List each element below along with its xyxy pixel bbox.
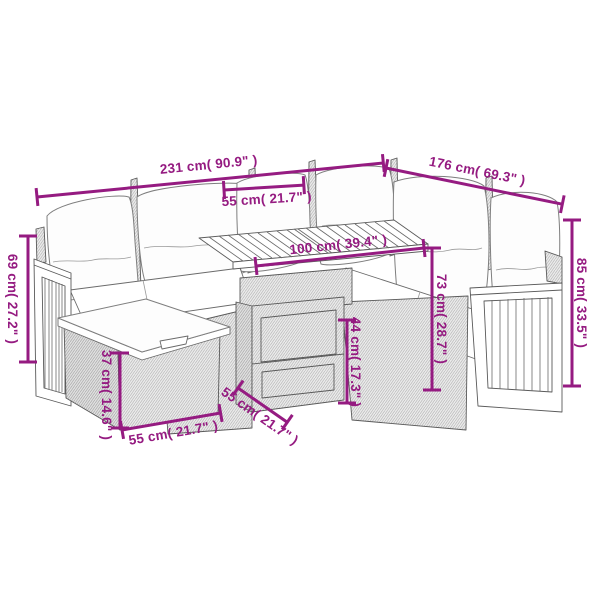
dimension-label: 73 cm( 28.7" ) (434, 274, 449, 364)
dimension-total-height: 85 cm( 33.5" ) (563, 220, 589, 386)
dimension-diagram-canvas: 231 cm( 90.9" ) 176 cm( 69.3" ) 55 cm( 2… (0, 0, 600, 600)
dimension-label: 69 cm( 27.2" ) (5, 254, 20, 344)
dimension-label: 37 cm( 14.6" ) (99, 350, 114, 440)
dimension-left-arm-height: 69 cm( 27.2" ) (5, 236, 37, 362)
dimension-label: 231 cm( 90.9" ) (159, 152, 258, 176)
dimension-label: 85 cm( 33.5" ) (574, 258, 589, 348)
dimension-label: 44 cm( 17.3" ) (348, 317, 363, 407)
garden-furniture-dimension-diagram: 231 cm( 90.9" ) 176 cm( 69.3" ) 55 cm( 2… (0, 0, 600, 600)
ottoman (58, 299, 230, 430)
